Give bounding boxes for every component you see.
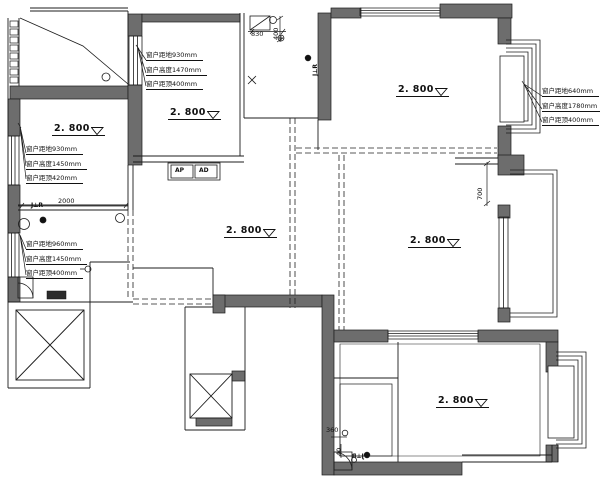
window-annotation-right: 窗户距地640mm 窗户高度1780mm 窗户距顶400mm xyxy=(542,88,600,132)
level-label-room-top-right: 2. 800 xyxy=(396,77,449,97)
level-label-room-left: 2. 800 xyxy=(52,116,105,136)
duct-shaft xyxy=(190,374,232,418)
bay-window-bottom-right xyxy=(548,352,586,448)
window-annotation-left-mid: 窗户距地930mm 窗户高度1450mm 窗户距顶420mm xyxy=(26,146,87,190)
window-annotation-top: 窗户距地930mm 窗户高度1470mm 窗户距顶400mm xyxy=(146,52,207,96)
bay-window-top-right xyxy=(500,40,540,133)
level-triangle-icon xyxy=(207,111,220,120)
window-annotation-line: 窗户距顶400mm xyxy=(146,81,203,90)
window-annotation-line: 窗户距地930mm xyxy=(26,146,83,155)
window-annotation-line: 窗户高度1450mm xyxy=(26,256,87,265)
level-triangle-icon xyxy=(447,239,460,248)
dimension-830: 830 xyxy=(251,31,263,38)
window-annotation-line: 窗户距地960mm xyxy=(26,241,83,250)
door-leaf xyxy=(47,291,66,299)
dimension-700: 700 xyxy=(477,188,484,200)
window-annotation-line: 窗户高度1450mm xyxy=(26,161,87,170)
window-annotation-line: 窗户距地640mm xyxy=(542,88,599,97)
floor-plan: 2. 800 2. 800 2. 800 2. 800 2. 800 2. 80… xyxy=(0,0,600,484)
window-annotation-line: 窗户高度1780mm xyxy=(542,103,600,112)
switch-label: J⊥R xyxy=(352,454,364,460)
level-label-room-right: 2. 800 xyxy=(408,228,461,248)
floor-plan-linework xyxy=(0,0,600,484)
panel-label-ap: AP xyxy=(175,168,184,174)
level-triangle-icon xyxy=(435,88,448,97)
balcony-outline xyxy=(510,170,557,317)
level-label-hall: 2. 800 xyxy=(224,218,277,238)
window-annotation-line: 窗户距顶420mm xyxy=(26,175,83,184)
dimension-2000: 2000 xyxy=(58,198,75,205)
dimension-400: 400 xyxy=(273,28,280,40)
level-label-room-bottom-right: 2. 800 xyxy=(436,388,489,408)
window-annotation-line: 窗户距地930mm xyxy=(146,52,203,61)
stair-ladder xyxy=(10,21,18,83)
switch-label: J⊥R xyxy=(31,203,43,209)
leader-lines xyxy=(18,45,542,275)
level-triangle-icon xyxy=(91,127,104,136)
level-label-room-top: 2. 800 xyxy=(168,100,221,120)
window-annotation-left-low: 窗户距地960mm 窗户高度1450mm 窗户距顶400mm xyxy=(26,241,87,285)
elevator-shaft xyxy=(16,310,84,380)
dimension-40: 40 xyxy=(336,448,343,456)
pipe-break-mark xyxy=(248,76,256,84)
level-triangle-icon xyxy=(475,399,488,408)
level-triangle-icon xyxy=(263,229,276,238)
dimension-360: 360 xyxy=(326,427,338,434)
stair-diagonal xyxy=(20,18,128,84)
window-annotation-line: 窗户高度1470mm xyxy=(146,67,207,76)
window-annotation-line: 窗户距顶400mm xyxy=(542,117,599,126)
panel-label-ad: AD xyxy=(199,168,209,174)
switch-label: J⊥R xyxy=(313,64,319,76)
window-annotation-line: 窗户距顶400mm xyxy=(26,270,83,279)
